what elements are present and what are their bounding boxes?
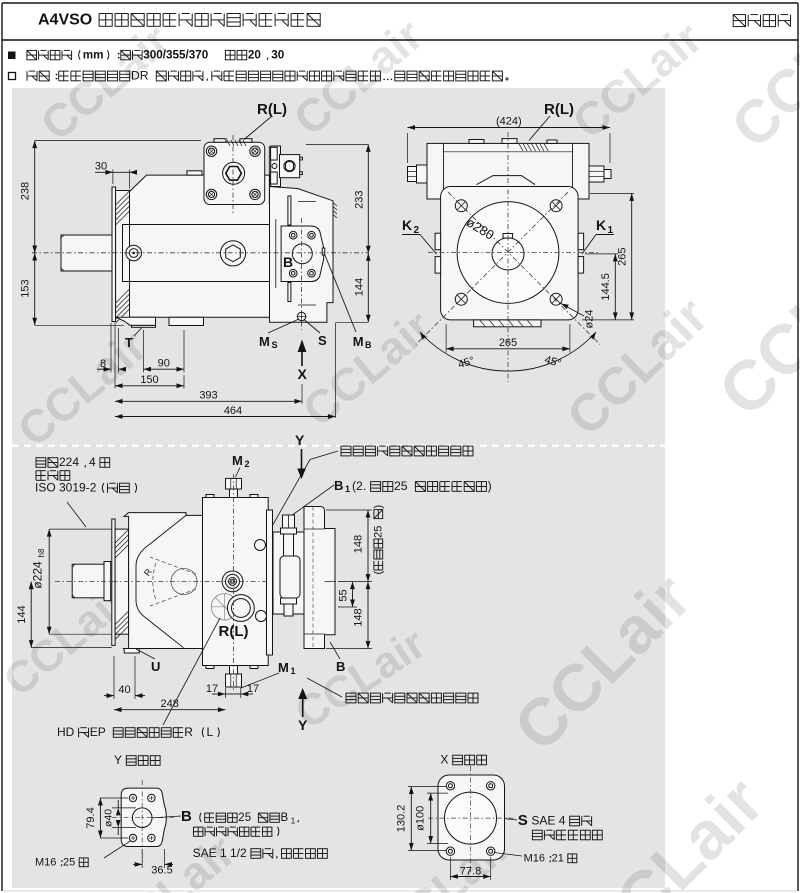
svg-text:148: 148: [353, 535, 365, 553]
svg-text:M: M: [259, 334, 270, 349]
svg-text:8: 8: [100, 358, 106, 370]
svg-text:79.4: 79.4: [85, 807, 97, 828]
svg-text:265: 265: [616, 247, 628, 265]
svg-text:M16: M16: [35, 857, 56, 869]
svg-text:ø224: ø224: [31, 561, 45, 589]
svg-text:R(L): R(L): [257, 101, 287, 118]
svg-text:B: B: [336, 659, 345, 674]
svg-text:U: U: [151, 659, 160, 674]
svg-text:1: 1: [291, 666, 296, 676]
svg-text:224: 224: [59, 455, 79, 469]
svg-text:SAE 1 1/2: SAE 1 1/2: [193, 846, 247, 860]
svg-text:30: 30: [95, 161, 107, 173]
svg-text:L: L: [207, 725, 214, 739]
svg-text:A4VSO: A4VSO: [38, 12, 92, 29]
svg-text:): ): [373, 505, 385, 509]
svg-text:Y: Y: [295, 432, 305, 448]
svg-text:ø40: ø40: [103, 809, 115, 827]
svg-text:17: 17: [206, 683, 218, 695]
svg-text:ISO 3019-2: ISO 3019-2: [35, 481, 97, 495]
svg-text:393: 393: [199, 390, 217, 402]
svg-text:R(L): R(L): [544, 101, 574, 118]
svg-text:R(L): R(L): [219, 623, 249, 640]
svg-text:SAE 4: SAE 4: [531, 814, 565, 828]
svg-text:40: 40: [118, 684, 130, 696]
svg-text:Y: Y: [298, 717, 308, 733]
svg-text:130.2: 130.2: [396, 805, 408, 833]
svg-text:25: 25: [394, 479, 408, 493]
svg-text:Y: Y: [114, 753, 122, 767]
svg-text:ø24: ø24: [584, 310, 596, 329]
svg-text:144: 144: [16, 605, 28, 623]
svg-text:1: 1: [345, 484, 350, 494]
svg-text:238: 238: [20, 182, 32, 200]
svg-text:(: (: [373, 571, 385, 575]
svg-text:S: S: [518, 812, 528, 829]
svg-text:30: 30: [271, 49, 285, 62]
svg-text:(424): (424): [496, 116, 522, 128]
svg-text:144: 144: [354, 278, 366, 296]
svg-text:1: 1: [291, 817, 296, 826]
svg-text:25: 25: [373, 526, 385, 538]
svg-text:248: 248: [161, 698, 179, 710]
svg-text:90: 90: [158, 358, 170, 370]
svg-text:36.5: 36.5: [151, 865, 172, 877]
svg-text:S: S: [318, 333, 327, 348]
svg-text:): ): [488, 479, 492, 493]
svg-text:233: 233: [354, 191, 366, 209]
svg-text:148: 148: [353, 608, 365, 626]
svg-text:55: 55: [338, 589, 350, 601]
svg-text:M: M: [232, 453, 243, 468]
svg-text:17: 17: [247, 683, 259, 695]
svg-text:M16: M16: [524, 853, 545, 865]
svg-text:153: 153: [20, 279, 32, 297]
svg-text:150: 150: [140, 374, 158, 386]
svg-text:(2.: (2.: [352, 479, 366, 493]
svg-text:4: 4: [89, 455, 96, 469]
svg-text:h8: h8: [37, 548, 46, 557]
svg-text:25: 25: [63, 857, 75, 869]
svg-text:ø100: ø100: [415, 806, 427, 831]
svg-text:B: B: [181, 808, 192, 825]
svg-text:K: K: [596, 217, 606, 233]
svg-text:S: S: [272, 340, 278, 350]
svg-text:X: X: [440, 753, 448, 767]
svg-text:T: T: [125, 335, 133, 350]
svg-text:X: X: [298, 366, 308, 382]
svg-text:CCLair: CCLair: [704, 214, 800, 431]
svg-text:M: M: [353, 334, 364, 349]
svg-text:21: 21: [552, 853, 564, 865]
svg-text:265: 265: [499, 337, 517, 349]
svg-text:EP: EP: [90, 725, 106, 739]
svg-text:K: K: [402, 217, 412, 233]
svg-text:464: 464: [224, 405, 242, 417]
svg-text:R: R: [184, 725, 193, 739]
svg-text:20: 20: [248, 49, 262, 62]
svg-text:25: 25: [238, 812, 251, 824]
svg-text:B: B: [283, 254, 293, 270]
svg-text:77.8: 77.8: [460, 866, 481, 878]
svg-text:M: M: [278, 660, 289, 675]
svg-text:B: B: [365, 340, 372, 350]
svg-text:144.5: 144.5: [600, 273, 612, 301]
svg-text:HD: HD: [57, 725, 75, 739]
svg-text:B: B: [281, 812, 289, 824]
svg-text:B: B: [334, 478, 343, 493]
svg-text:2: 2: [245, 459, 250, 469]
